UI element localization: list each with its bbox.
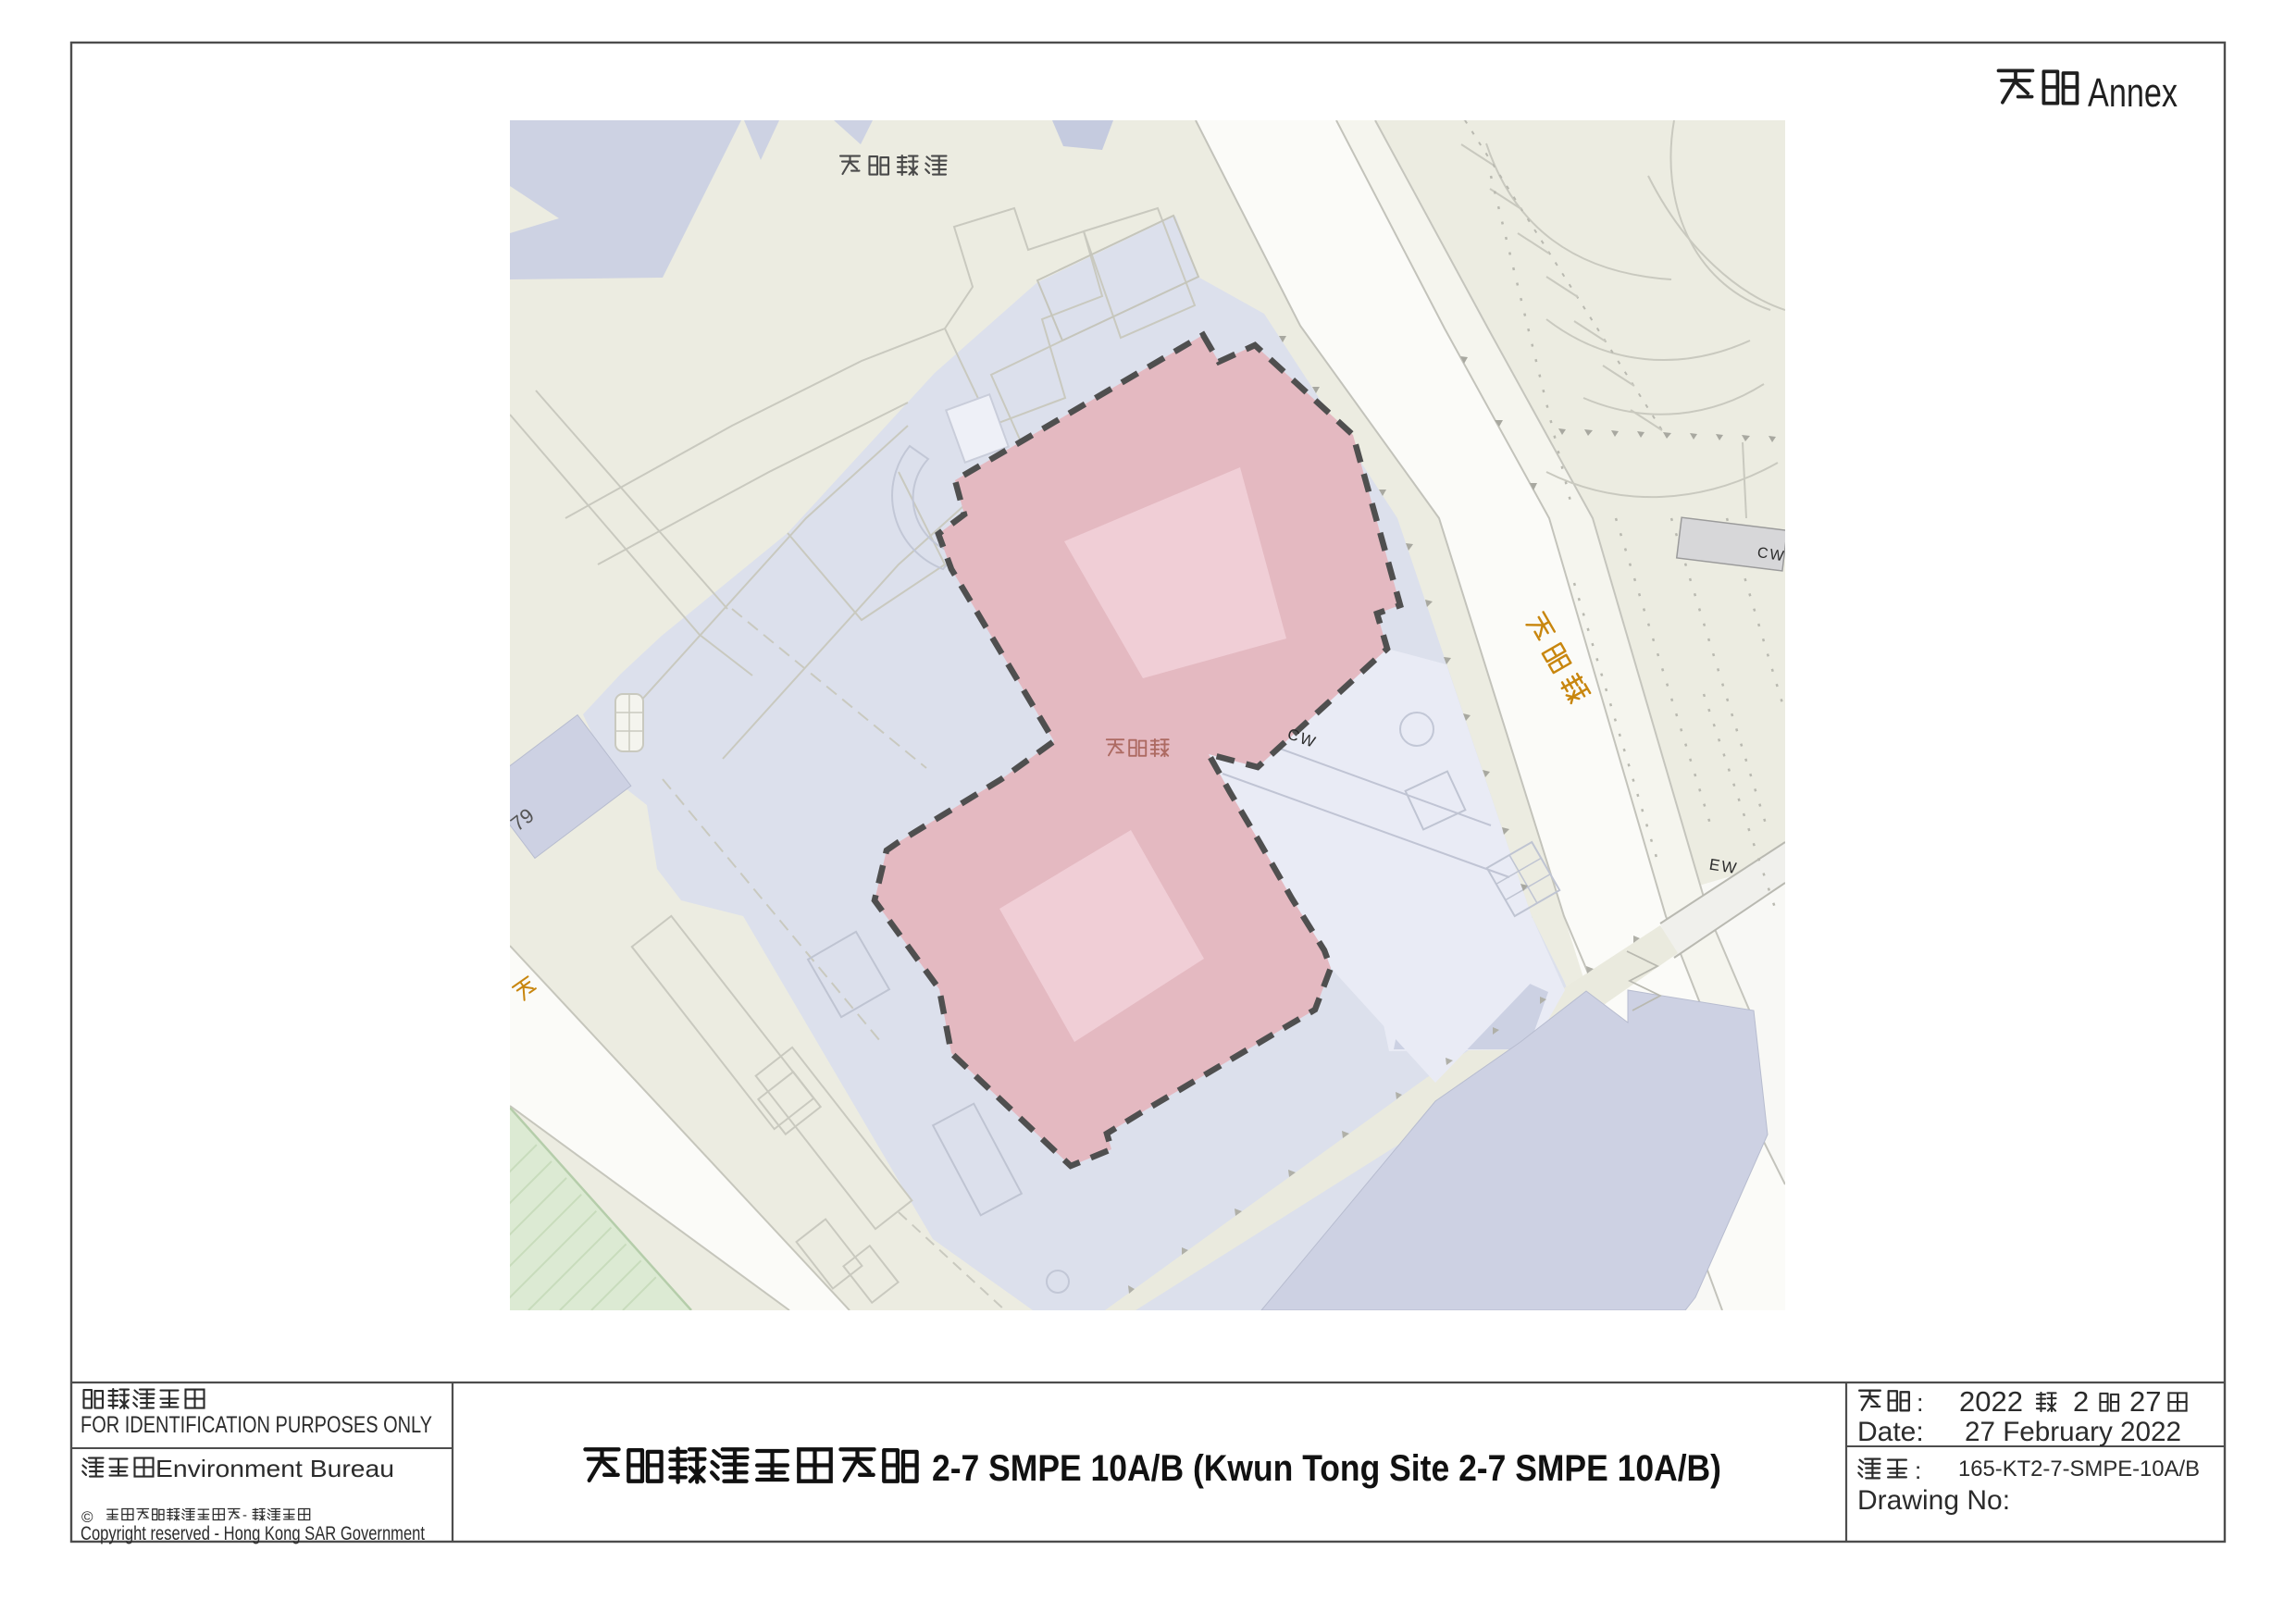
svg-text:Copyright reserved - Hong Kong: Copyright reserved - Hong Kong SAR Gover…	[81, 1523, 425, 1544]
svg-text:27 February 2022: 27 February 2022	[1965, 1417, 2181, 1447]
svg-text::: :	[1915, 1457, 1921, 1484]
svg-text:165-KT2-7-SMPE-10A/B: 165-KT2-7-SMPE-10A/B	[1958, 1457, 2200, 1481]
svg-text:2-7 SMPE 10A/B (Kwun Tong Site: 2-7 SMPE 10A/B (Kwun Tong Site 2-7 SMPE …	[932, 1448, 1721, 1489]
svg-text:2022: 2022	[1959, 1385, 2023, 1418]
svg-text:FOR IDENTIFICATION PURPOSES ON: FOR IDENTIFICATION PURPOSES ONLY	[81, 1412, 432, 1438]
svg-text:2: 2	[2073, 1385, 2089, 1418]
svg-text::: :	[1917, 1389, 1924, 1417]
svg-text:Annex: Annex	[2088, 70, 2178, 116]
svg-text:Environment Bureau: Environment Bureau	[155, 1455, 394, 1482]
svg-text:Drawing No:: Drawing No:	[1857, 1485, 2010, 1516]
svg-text:-: -	[242, 1507, 247, 1523]
svg-text:Date:: Date:	[1857, 1417, 1924, 1447]
svg-text:27: 27	[2129, 1385, 2161, 1418]
